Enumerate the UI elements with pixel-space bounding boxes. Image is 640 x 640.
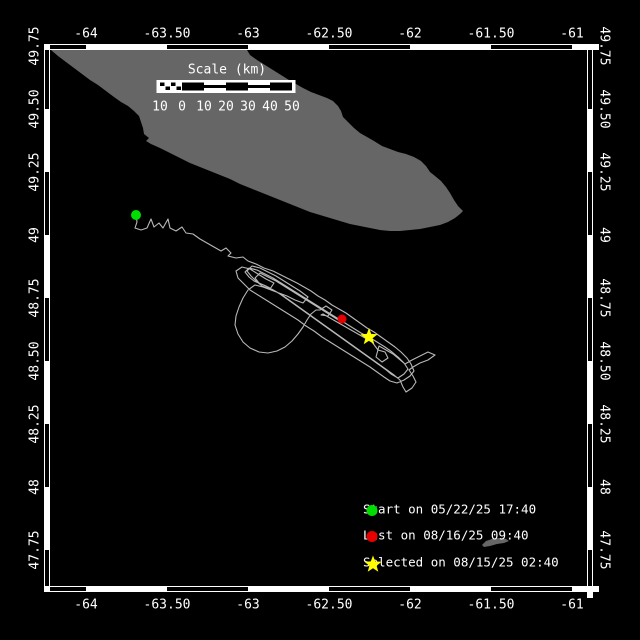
axis-label: -61 bbox=[560, 28, 583, 41]
scale-tick: 30 bbox=[240, 101, 256, 114]
map-page: -64-64-63.50-63.50-63-63-62.50-62.50-62-… bbox=[0, 0, 640, 640]
axis-label: 48.25 bbox=[29, 404, 42, 443]
last-legend-icon bbox=[363, 528, 381, 546]
axis-label: 49.25 bbox=[598, 152, 611, 191]
scale-cell bbox=[177, 87, 182, 91]
frame-tick-segment bbox=[491, 587, 572, 591]
axis-label: 47.75 bbox=[598, 530, 611, 569]
axis-label: 49 bbox=[598, 227, 611, 243]
frame-tick-segment bbox=[45, 298, 49, 361]
axis-label: -61.50 bbox=[468, 599, 515, 612]
selected-marker bbox=[360, 328, 377, 344]
legend-start-label: Start on 05/22/25 17:40 bbox=[363, 502, 536, 517]
scale-cell bbox=[248, 85, 270, 88]
frame-tick-segment bbox=[491, 45, 572, 49]
axis-label: 48.50 bbox=[29, 341, 42, 380]
start-marker bbox=[131, 210, 141, 220]
axis-label: -61.50 bbox=[468, 28, 515, 41]
scale-cell bbox=[171, 83, 176, 87]
legend-selected-label: Selected on 08/15/25 02:40 bbox=[363, 555, 559, 570]
axis-label: 49.50 bbox=[598, 89, 611, 128]
scale-cell bbox=[182, 83, 204, 91]
legend-item-selected: Selected on 08/15/25 02:40 bbox=[363, 555, 559, 570]
axis-label: 47.75 bbox=[29, 530, 42, 569]
axis-label: -63 bbox=[236, 28, 259, 41]
scale-tick: 10 bbox=[152, 101, 168, 114]
axis-label: 48 bbox=[29, 479, 42, 495]
frame-tick-segment bbox=[588, 424, 592, 487]
axis-label: 48.75 bbox=[29, 278, 42, 317]
axis-label: 48 bbox=[598, 479, 611, 495]
scale-tick: 0 bbox=[178, 101, 186, 114]
frame-tick-segment bbox=[588, 50, 592, 109]
scale-cell bbox=[204, 85, 226, 88]
axis-label: -62.50 bbox=[306, 28, 353, 41]
frame-tick-segment bbox=[45, 50, 49, 109]
scale-bar bbox=[157, 80, 296, 93]
axis-label: 49 bbox=[29, 227, 42, 243]
axis-label: -62.50 bbox=[306, 599, 353, 612]
legend-item-last: Last on 08/16/25 09:40 bbox=[363, 528, 529, 543]
scale-cell bbox=[160, 83, 165, 87]
axis-label: -64 bbox=[74, 28, 97, 41]
selected-legend-icon bbox=[363, 555, 383, 575]
legend-last-label: Last on 08/16/25 09:40 bbox=[363, 528, 529, 543]
track-line bbox=[135, 215, 435, 392]
frame-tick-segment bbox=[329, 587, 410, 591]
start-legend-icon bbox=[363, 502, 381, 520]
frame-tick-segment bbox=[588, 550, 592, 586]
frame-tick-segment bbox=[50, 587, 86, 591]
frame-tick-segment bbox=[45, 550, 49, 586]
legend-item-start: Start on 05/22/25 17:40 bbox=[363, 502, 536, 517]
axis-label: -63.50 bbox=[144, 28, 191, 41]
axis-label: -62 bbox=[398, 599, 421, 612]
last-marker bbox=[338, 315, 347, 324]
frame-tick-segment bbox=[588, 298, 592, 361]
frame-tick-segment bbox=[50, 45, 86, 49]
frame-tick-segment bbox=[167, 587, 248, 591]
frame-tick-segment bbox=[167, 45, 248, 49]
axis-label: 48.75 bbox=[598, 278, 611, 317]
axis-label: 48.50 bbox=[598, 341, 611, 380]
axis-label: -63.50 bbox=[144, 599, 191, 612]
scale-title: Scale (km) bbox=[188, 64, 266, 77]
map-canvas bbox=[0, 0, 640, 640]
axis-label: -64 bbox=[74, 599, 97, 612]
axis-label: -63 bbox=[236, 599, 259, 612]
frame-tick-segment bbox=[588, 172, 592, 235]
scale-tick: 20 bbox=[218, 101, 234, 114]
axis-label: -62 bbox=[398, 28, 421, 41]
axis-label: 49.25 bbox=[29, 152, 42, 191]
scale-tick: 50 bbox=[284, 101, 300, 114]
axis-label: 49.75 bbox=[29, 26, 42, 65]
axis-label: 48.25 bbox=[598, 404, 611, 443]
frame-tick-segment bbox=[45, 172, 49, 235]
scale-tick: 40 bbox=[262, 101, 278, 114]
scale-tick: 10 bbox=[196, 101, 212, 114]
scale-cell bbox=[270, 83, 292, 91]
axis-label: 49.50 bbox=[29, 89, 42, 128]
scale-cell bbox=[166, 87, 171, 91]
axis-label: 49.75 bbox=[598, 26, 611, 65]
frame-tick-segment bbox=[329, 45, 410, 49]
scale-cell bbox=[226, 83, 248, 91]
frame-tick-segment bbox=[45, 424, 49, 487]
axis-label: -61 bbox=[560, 599, 583, 612]
